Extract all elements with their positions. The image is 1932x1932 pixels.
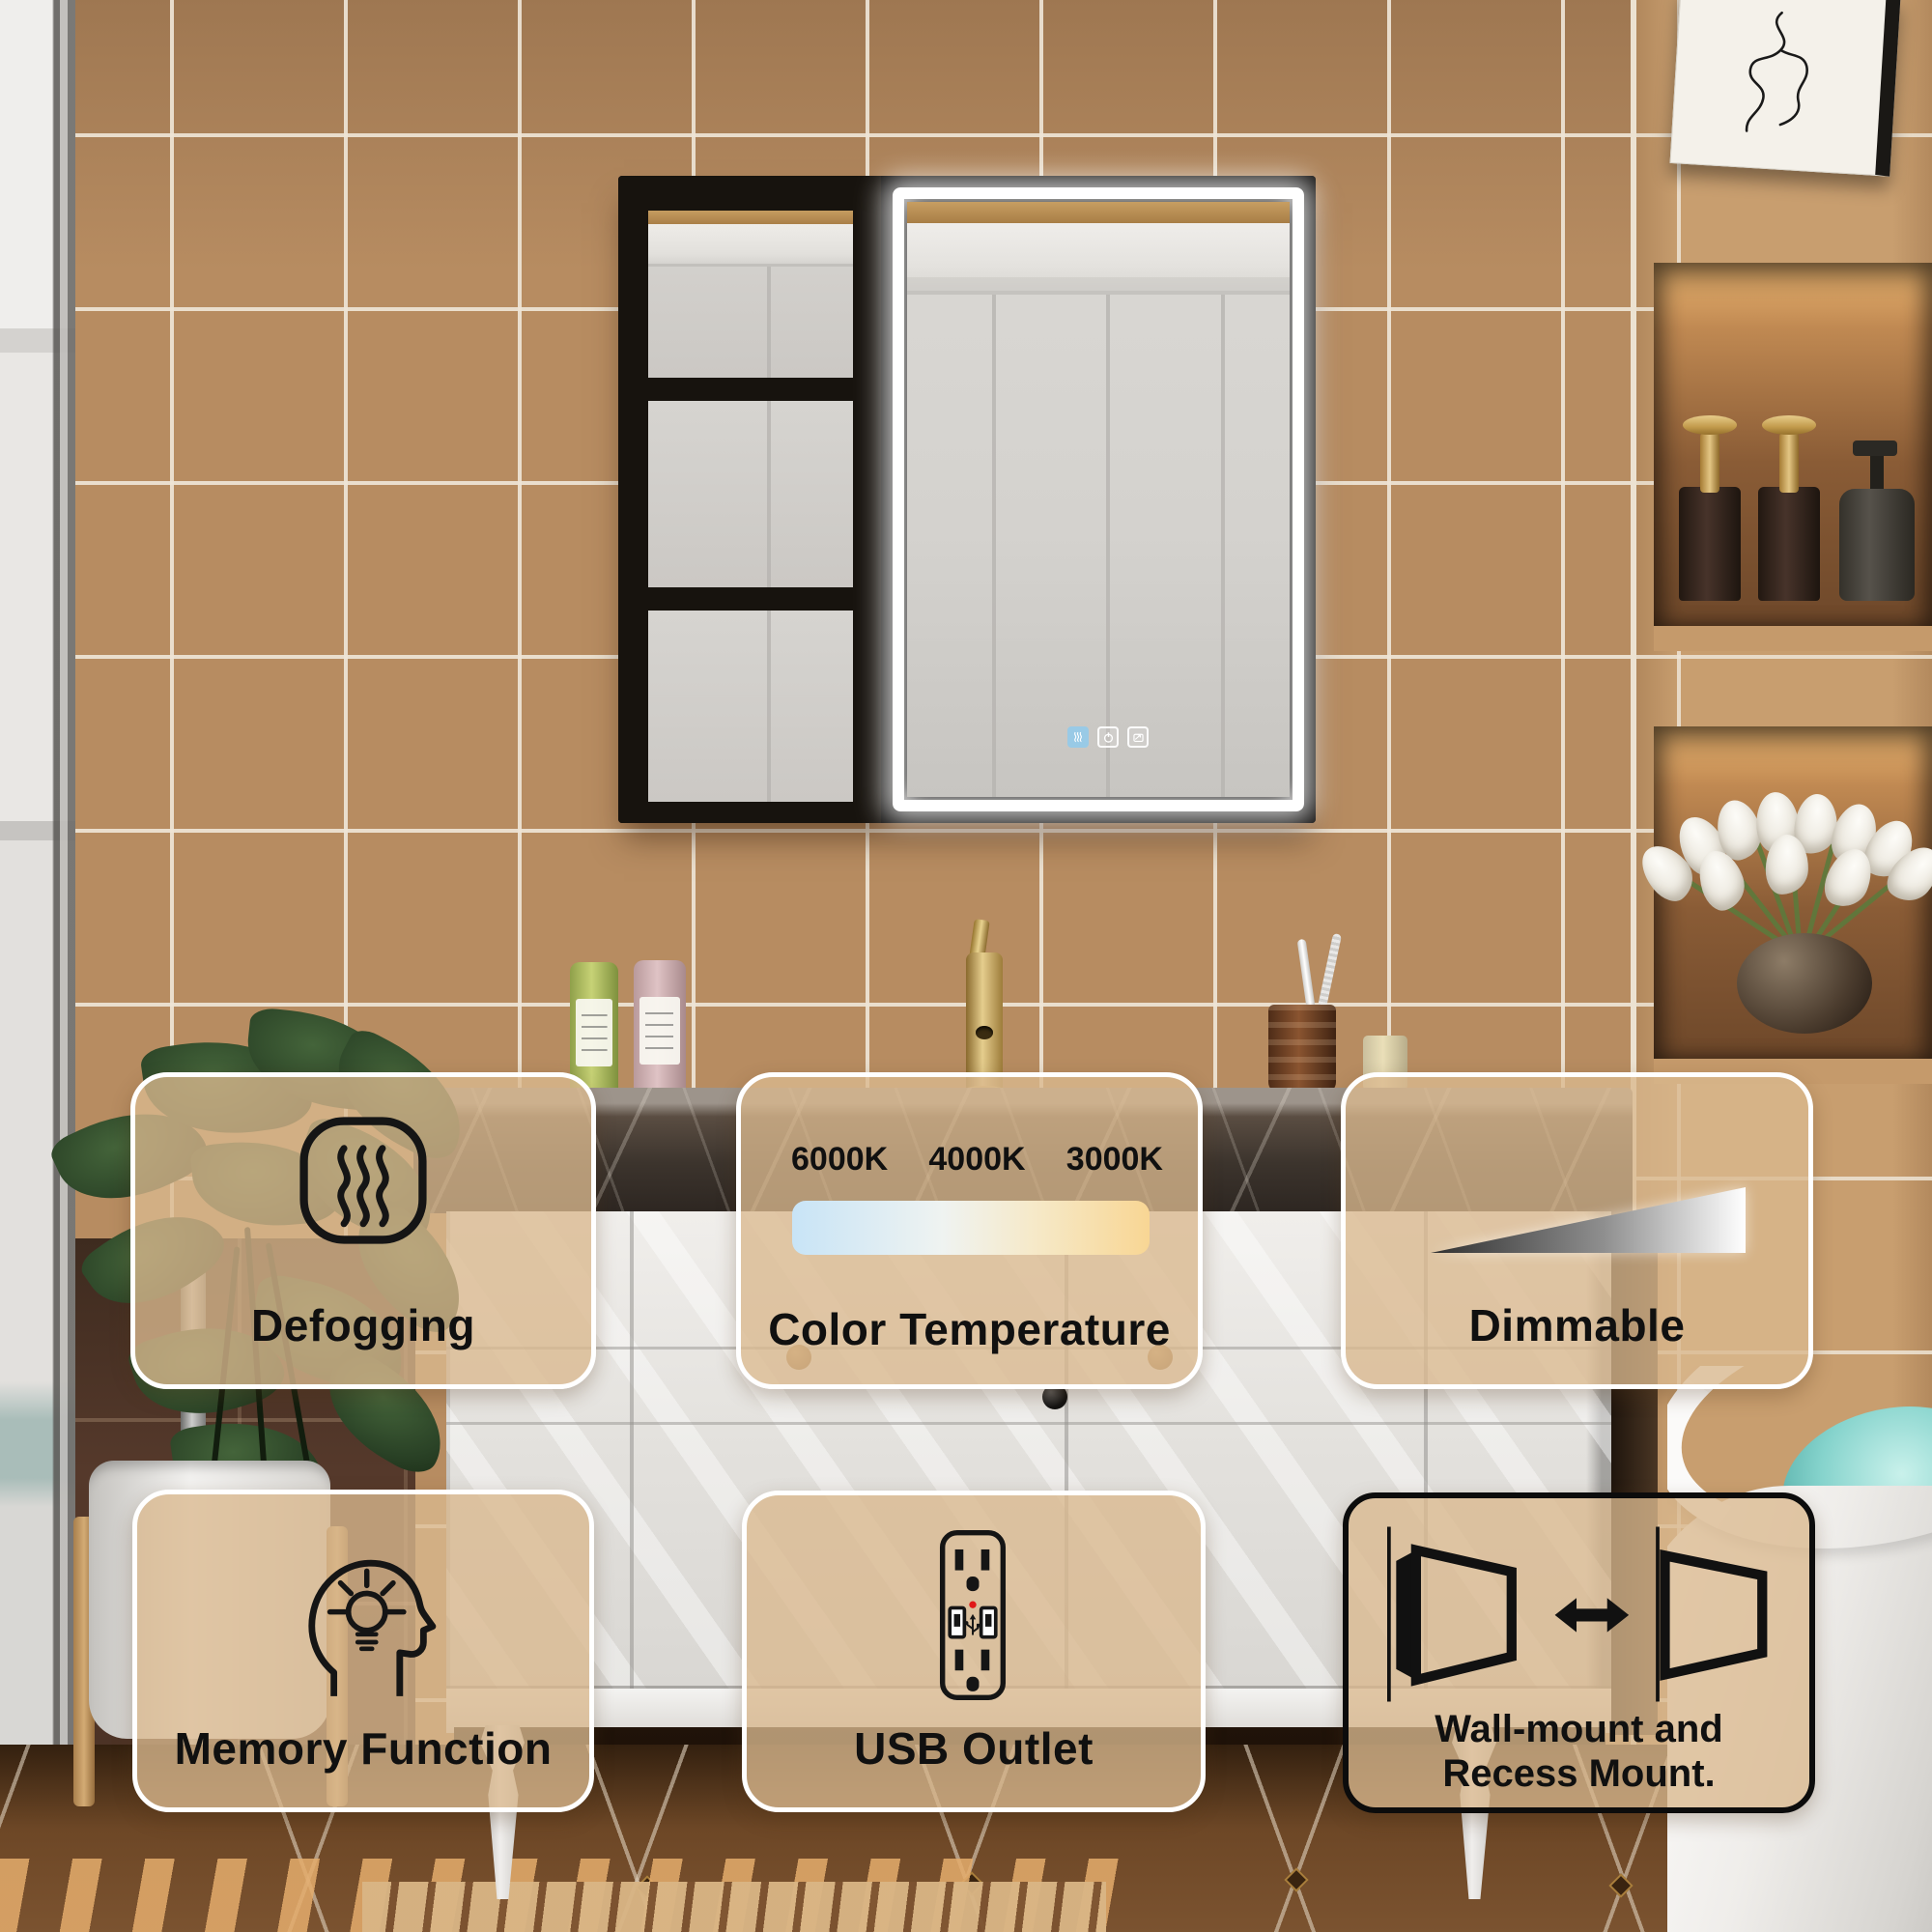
feature-card-usb-outlet: USB Outlet	[742, 1491, 1206, 1812]
display-niche-bottles	[1654, 263, 1932, 651]
card-label: Defogging	[135, 1299, 591, 1351]
dimmer-wedge-icon	[1427, 1181, 1749, 1257]
soap-dispenser	[1839, 489, 1915, 601]
faucet-spout	[976, 1026, 993, 1039]
temp-4000k: 4000K	[928, 1141, 1025, 1179]
shelf-compartment	[648, 211, 853, 378]
wood-slat-mat	[362, 1882, 1106, 1932]
feature-card-color-temperature: 6000K 4000K 3000K Color Temperature	[736, 1072, 1203, 1389]
feature-card-defogging: Defogging	[130, 1072, 596, 1389]
open-shelf-unit	[618, 176, 885, 823]
antifog-touch-button	[1127, 726, 1149, 748]
line-art-figure	[1691, 0, 1855, 154]
gold-faucet	[966, 952, 1003, 1092]
defog-touch-button	[1067, 726, 1089, 748]
mount-label-line2: Recess Mount.	[1349, 1751, 1809, 1796]
card-label: USB Outlet	[747, 1722, 1201, 1775]
bathroom-scene: Defogging 6000K 4000K 3000K Color Temper…	[0, 0, 1932, 1932]
color-temperature-gradient-bar	[792, 1201, 1150, 1255]
temp-3000k: 3000K	[1066, 1141, 1163, 1179]
card-label: Wall-mount and Recess Mount.	[1349, 1707, 1809, 1797]
card-label: Memory Function	[137, 1722, 589, 1775]
temp-6000k: 6000K	[791, 1141, 888, 1179]
glass-vase	[1737, 933, 1872, 1034]
perfume-bottle	[1679, 487, 1741, 601]
perfume-bottle	[1758, 487, 1820, 601]
display-niche-flowers	[1654, 726, 1932, 1084]
power-touch-button	[1097, 726, 1119, 748]
defog-waves-icon	[283, 1100, 443, 1261]
toothbrush-cup	[1268, 1005, 1336, 1094]
mirror-touch-controls	[1067, 726, 1149, 748]
memory-head-bulb-icon	[292, 1523, 437, 1703]
medicine-cabinet	[618, 176, 1316, 823]
usb-led-dot	[969, 1602, 976, 1608]
feature-card-dimmable: Dimmable	[1341, 1072, 1813, 1389]
shelf-compartment	[648, 611, 853, 802]
shower-glass-edge	[0, 0, 75, 1932]
temperature-labels: 6000K 4000K 3000K	[791, 1141, 1163, 1179]
mirror-face	[907, 202, 1290, 797]
feature-card-memory-function: Memory Function	[132, 1490, 594, 1812]
led-mirror-door	[881, 176, 1316, 823]
card-label: Dimmable	[1346, 1299, 1808, 1351]
cosmetic-tube-pink	[634, 960, 686, 1095]
mount-label-line1: Wall-mount and	[1349, 1707, 1809, 1751]
feature-card-mounting: Wall-mount and Recess Mount.	[1343, 1492, 1815, 1813]
shelf-compartment	[648, 401, 853, 587]
card-label: Color Temperature	[741, 1303, 1198, 1355]
cosmetic-tube-green	[570, 962, 618, 1095]
wall-recess-mount-icon	[1378, 1520, 1776, 1709]
framed-line-art	[1670, 0, 1901, 177]
usb-outlet-icon	[921, 1520, 1025, 1710]
